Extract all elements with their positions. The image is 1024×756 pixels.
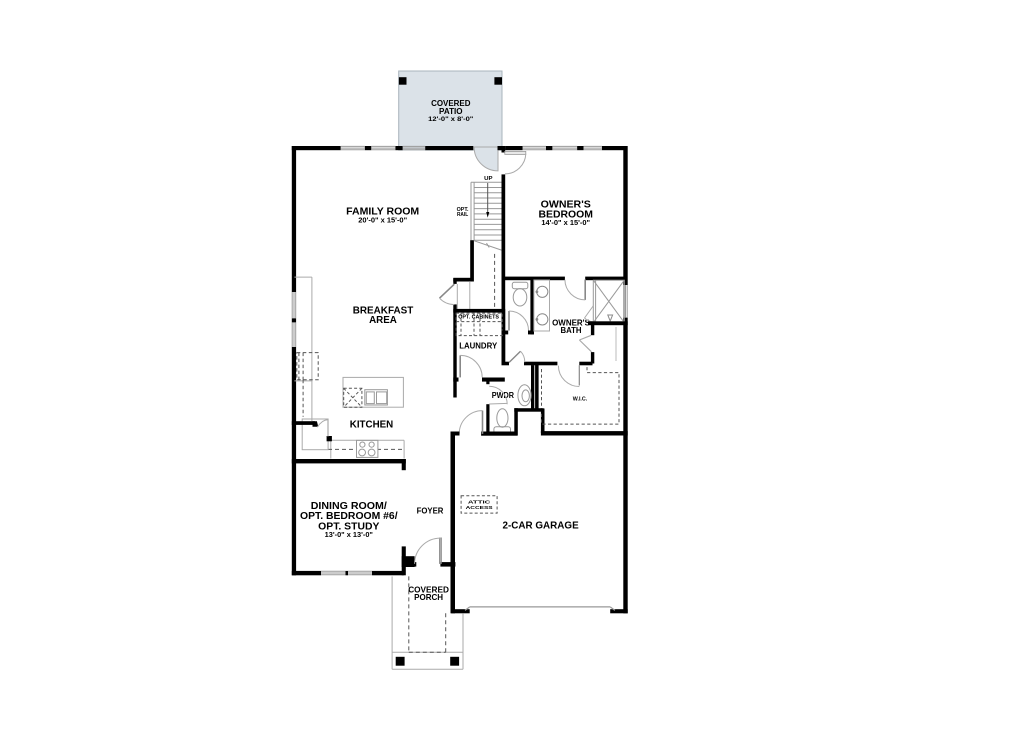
svg-text:W.I.C.: W.I.C. xyxy=(573,397,588,403)
svg-text:PORCH: PORCH xyxy=(414,592,443,602)
svg-text:2-CAR GARAGE: 2-CAR GARAGE xyxy=(503,519,579,531)
svg-text:FOYER: FOYER xyxy=(417,506,444,516)
svg-text:12'-0" x 8'-0": 12'-0" x 8'-0" xyxy=(428,116,473,123)
svg-text:ATTIC: ATTIC xyxy=(468,499,492,504)
svg-text:14'-0" x 15'-0": 14'-0" x 15'-0" xyxy=(541,220,590,227)
svg-text:UP: UP xyxy=(484,176,493,182)
svg-text:PATIO: PATIO xyxy=(439,107,463,116)
svg-text:OPT. CABINETS: OPT. CABINETS xyxy=(458,315,499,321)
svg-text:RAIL: RAIL xyxy=(457,212,468,218)
svg-text:ACCESS: ACCESS xyxy=(466,505,493,510)
svg-text:BATH: BATH xyxy=(560,325,581,335)
svg-text:LAUNDRY: LAUNDRY xyxy=(459,341,497,351)
svg-text:13'-0" x 13'-0": 13'-0" x 13'-0" xyxy=(325,532,373,539)
svg-text:KITCHEN: KITCHEN xyxy=(350,420,393,431)
svg-text:AREA: AREA xyxy=(369,315,397,326)
svg-text:20'-0" x 15'-0": 20'-0" x 15'-0" xyxy=(358,217,407,224)
svg-text:BEDROOM: BEDROOM xyxy=(539,209,593,220)
svg-text:OPT. STUDY: OPT. STUDY xyxy=(318,522,380,533)
svg-text:FAMILY ROOM: FAMILY ROOM xyxy=(346,206,419,217)
